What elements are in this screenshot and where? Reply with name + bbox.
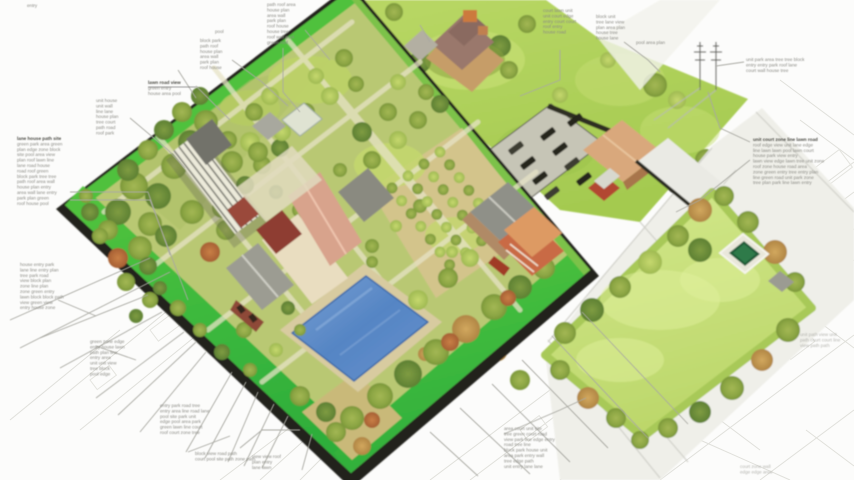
- svg-text:edge pool area park: edge pool area park: [160, 419, 202, 424]
- svg-text:unit wall: unit wall: [96, 103, 113, 108]
- svg-text:roof house: roof house: [267, 24, 289, 29]
- svg-text:roof wall pool: roof wall pool: [267, 34, 294, 39]
- svg-text:lawn block block path: lawn block block path: [20, 294, 64, 299]
- svg-text:path roof area wall: path roof area wall: [17, 179, 55, 184]
- svg-text:house park view entry: house park view entry: [753, 153, 798, 158]
- svg-text:view block plan: view block plan: [20, 278, 52, 283]
- svg-text:tree edge path: tree edge path: [504, 458, 534, 463]
- svg-text:green zone edge: green zone edge: [90, 339, 125, 344]
- svg-text:court wall house tree: court wall house tree: [746, 68, 789, 73]
- svg-text:lane house path site: lane house path site: [17, 136, 62, 141]
- svg-text:unit unit view: unit unit view: [90, 361, 117, 366]
- svg-text:plan entry: plan entry: [252, 459, 273, 464]
- svg-text:line lawn lawn pool lawn court: line lawn lawn pool lawn court: [753, 148, 814, 153]
- svg-text:park plan: park plan: [200, 60, 219, 65]
- svg-text:plan edge zone block: plan edge zone block: [17, 147, 61, 152]
- svg-text:tree lane view: tree lane view: [596, 19, 625, 24]
- svg-text:zone green entry: zone green entry: [20, 289, 55, 294]
- svg-text:block park tree tree: block park tree tree: [17, 174, 57, 179]
- svg-text:roof zone house road area: roof zone house road area: [753, 164, 807, 169]
- svg-text:pool area plan: pool area plan: [636, 40, 666, 45]
- svg-text:edge edge area: edge edge area: [740, 469, 773, 474]
- svg-text:unit court edge: unit court edge: [543, 13, 574, 18]
- svg-text:line lane: line lane: [96, 109, 114, 114]
- svg-text:house plan entry: house plan entry: [17, 185, 52, 190]
- svg-text:road roof green: road roof green: [17, 168, 49, 173]
- svg-text:block park: block park: [200, 38, 222, 43]
- svg-text:entry house lawn: entry house lawn: [90, 344, 125, 349]
- svg-text:house road: house road: [543, 30, 566, 35]
- svg-text:roof court zone tree: roof court zone tree: [160, 430, 200, 435]
- svg-text:entry house zone: entry house zone: [20, 305, 56, 310]
- svg-text:pool: pool: [215, 29, 224, 34]
- svg-text:house tree: house tree: [267, 29, 289, 34]
- svg-text:roof park: roof park: [96, 130, 115, 135]
- svg-text:view view roof: view view roof: [252, 454, 282, 459]
- svg-text:green entry: green entry: [148, 85, 172, 90]
- svg-text:path court court line: path court court line: [800, 337, 841, 342]
- svg-text:court zone wall: court zone wall: [740, 464, 771, 469]
- svg-text:lane road house: lane road house: [17, 163, 50, 168]
- svg-text:court lawn unit: court lawn unit: [543, 8, 573, 13]
- svg-text:path road: path road: [96, 125, 116, 130]
- svg-text:area wall: area wall: [267, 13, 285, 18]
- svg-text:entry area line road lane: entry area line road lane: [160, 408, 210, 413]
- svg-text:block view road path: block view road path: [195, 451, 237, 456]
- svg-text:unit house: unit house: [96, 98, 118, 103]
- svg-text:entry park road tree: entry park road tree: [160, 403, 201, 408]
- svg-text:tree plan park line lawn entry: tree plan park line lawn entry: [753, 180, 812, 185]
- svg-text:entry: entry: [27, 3, 38, 8]
- svg-text:plan area plan: plan area plan: [596, 25, 626, 30]
- svg-text:area wall lane entry: area wall lane entry: [17, 190, 58, 195]
- svg-text:roof entry: roof entry: [543, 24, 563, 29]
- svg-text:house plan: house plan: [267, 7, 290, 12]
- svg-text:zone line plan: zone line plan: [20, 284, 49, 289]
- svg-text:house entry park: house entry park: [20, 262, 55, 267]
- svg-text:green lawn line court: green lawn line court: [160, 425, 203, 430]
- svg-text:unit court zone line lawn road: unit court zone line lawn road: [753, 137, 818, 142]
- svg-text:entry court court: entry court court: [543, 19, 577, 24]
- svg-text:path roof area: path roof area: [267, 2, 296, 7]
- svg-text:lawn view edge lawn tree unit: lawn view edge lawn tree unit zone: [753, 159, 825, 164]
- svg-text:green roof: green roof: [267, 40, 289, 45]
- svg-text:entry area: entry area: [90, 355, 111, 360]
- svg-text:house plan: house plan: [200, 49, 223, 54]
- svg-text:plan roof lawn line: plan roof lawn line: [17, 158, 54, 163]
- svg-text:roof house pool: roof house pool: [17, 201, 49, 206]
- svg-text:tree park road: tree park road: [20, 273, 49, 278]
- svg-text:unit entry lane lane: unit entry lane lane: [504, 464, 543, 469]
- svg-text:entry entry park roof lane: entry entry park roof lane: [746, 62, 798, 67]
- svg-text:unit park area tree tree block: unit park area tree tree block: [746, 57, 805, 62]
- svg-text:pool edge: pool edge: [90, 371, 111, 376]
- svg-text:unit path view unit: unit path view unit: [800, 332, 837, 337]
- svg-text:house tree: house tree: [596, 30, 618, 35]
- svg-text:view green view: view green view: [20, 300, 53, 305]
- svg-text:house plan: house plan: [96, 114, 119, 119]
- svg-text:lane line entry plan: lane line entry plan: [20, 267, 59, 272]
- svg-text:block unit: block unit: [596, 14, 616, 19]
- svg-text:area court unit site: area court unit site: [504, 426, 542, 431]
- svg-text:tree block: tree block: [90, 366, 111, 371]
- svg-text:path roof: path roof: [200, 43, 219, 48]
- svg-text:pool site park unit: pool site park unit: [160, 414, 197, 419]
- svg-text:zone green entry tree entry pl: zone green entry tree entry plan: [753, 169, 819, 174]
- svg-text:park plan green: park plan green: [17, 195, 49, 200]
- svg-text:line green road unit park zone: line green road unit park zone: [753, 175, 814, 180]
- svg-text:lawn road view: lawn road view: [148, 80, 181, 85]
- svg-text:court pool site path zone path: court pool site path zone path: [195, 456, 256, 461]
- svg-text:path plan line: path plan line: [90, 350, 118, 355]
- svg-text:block park house unit: block park house unit: [504, 448, 548, 453]
- svg-text:lane lawn: lane lawn: [252, 465, 272, 470]
- svg-text:house area pool: house area pool: [148, 91, 181, 96]
- svg-text:tree court: tree court: [96, 120, 116, 125]
- svg-text:green park area green: green park area green: [17, 141, 63, 146]
- svg-text:house lane: house lane: [596, 36, 619, 41]
- svg-text:park plan: park plan: [267, 18, 286, 23]
- svg-text:tree green court road: tree green court road: [504, 431, 547, 436]
- svg-text:area wall: area wall: [200, 54, 218, 59]
- svg-text:roof edge view unit lane edge: roof edge view unit lane edge: [753, 142, 813, 147]
- svg-text:area park entry wall: area park entry wall: [504, 453, 544, 458]
- svg-text:site pool area view: site pool area view: [17, 152, 56, 157]
- svg-text:view path path: view path path: [800, 343, 830, 348]
- svg-text:roof house: roof house: [200, 65, 222, 70]
- svg-text:road tree line: road tree line: [504, 442, 531, 447]
- svg-text:view park line edge entry: view park line edge entry: [504, 437, 556, 442]
